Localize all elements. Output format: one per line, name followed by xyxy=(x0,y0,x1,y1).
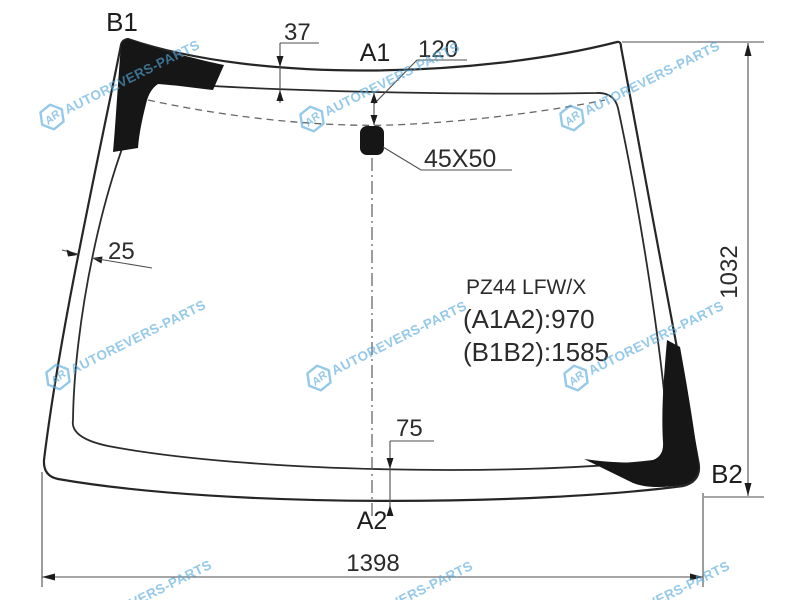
arrow-icon xyxy=(745,43,752,56)
arrow-icon xyxy=(745,483,752,496)
dim-bottom-band-value: 75 xyxy=(396,415,423,442)
point-label-a2: A2 xyxy=(357,507,388,535)
watermark xyxy=(45,552,217,600)
windshield-diagram: AR AUTOREVERS-PARTS 37 120 45X50 xyxy=(0,0,800,600)
part-dim-a1a2: (A1A2):970 xyxy=(463,304,595,334)
dim-top-band-value: 37 xyxy=(284,19,311,46)
part-dim-b1b2: (B1B2):1585 xyxy=(463,337,609,367)
point-label-a1: A1 xyxy=(360,39,391,67)
mirror-mount xyxy=(360,126,384,155)
mirror-bracket-size: 45X50 xyxy=(424,145,496,173)
arrow-icon xyxy=(67,250,79,257)
point-label-b1: B1 xyxy=(106,7,138,37)
windshield-diagram-svg: AR AUTOREVERS-PARTS 37 120 45X50 xyxy=(0,0,800,600)
point-label-b2: B2 xyxy=(711,459,743,489)
dim-side-band-value: 25 xyxy=(108,238,135,265)
dim-width-value: 1398 xyxy=(346,550,399,577)
arrow-icon xyxy=(387,505,394,516)
dim-height-value: 1032 xyxy=(716,245,743,298)
part-code: PZ44 LFW/X xyxy=(466,276,586,299)
arrow-icon xyxy=(277,56,284,67)
arrow-icon xyxy=(42,574,55,581)
